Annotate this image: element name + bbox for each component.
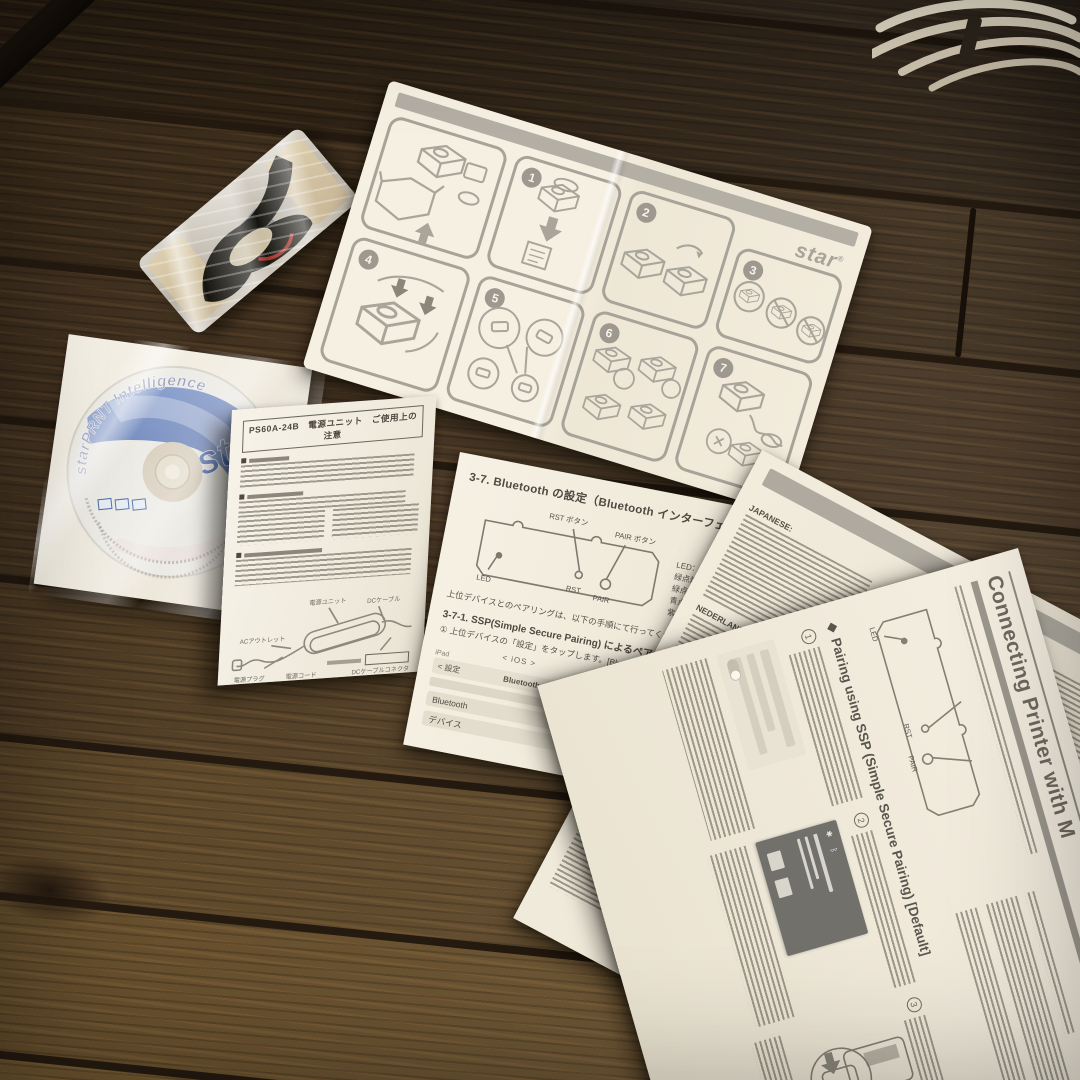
step2-art: [602, 191, 734, 327]
photo-scene: starPRNT Intelligence star star®: [0, 0, 1080, 1080]
label-pair: PAIR: [906, 754, 919, 773]
label-power-cord: 電源コード: [285, 671, 316, 681]
label-pair: PAIR: [592, 593, 611, 605]
power-adapter-diagram: 電源ユニット DCケーブル ACアウトレット 電源プラグ 電源コード DCケーブ…: [229, 577, 418, 686]
label-dc-cable: DCケーブル: [367, 595, 401, 605]
diamond-bullet: ◆: [824, 620, 842, 634]
bluetooth-icon: ᛒ: [829, 847, 839, 854]
ios-back-link: < 設定: [437, 660, 462, 675]
step-circle: 1: [800, 627, 819, 646]
label-rst-button: RST ボタン: [549, 511, 589, 527]
label-power-plug: 電源プラグ: [234, 674, 265, 684]
label-ac-outlet: ACアウトレット: [240, 635, 286, 646]
panel-unbox: [358, 114, 510, 261]
ios-devices-label: デバイス: [427, 713, 462, 731]
pairing-step-col: 2 ✱ ᛒ: [698, 811, 915, 1030]
label-led: LED: [867, 626, 880, 643]
unbox-art: [362, 118, 507, 258]
footer-text-bar: [327, 658, 361, 664]
label-rst: RST: [565, 584, 582, 596]
label-led: LED: [476, 573, 493, 585]
leaflet-title: PS60A-24B 電源ユニット ご使用上の注意: [242, 405, 424, 453]
text-lines: [237, 510, 325, 546]
white-cable: [872, 0, 1080, 114]
step3-prohibition-art: [716, 249, 841, 362]
pairing-step-col: 1: [646, 627, 863, 846]
ios-bluetooth-label: Bluetooth: [431, 694, 468, 711]
mock-bar: [813, 834, 833, 893]
settings-icon: ✱: [824, 829, 834, 838]
panel-step-3: 3: [713, 245, 845, 366]
section-bullet: [239, 494, 244, 499]
ios-title: Bluetooth: [503, 674, 541, 690]
section-bullet: [241, 458, 246, 463]
section-bullet: [236, 553, 241, 558]
label-rst: RST: [901, 723, 914, 740]
step-circle: 2: [852, 811, 871, 830]
label-pair-button: PAIR ボタン: [614, 530, 657, 547]
mock-button: [774, 878, 792, 899]
step-circle: 3: [905, 995, 924, 1014]
step6-art: [562, 311, 698, 461]
step4-art: [321, 238, 470, 391]
panel-step-2: 2: [599, 188, 738, 332]
text-lines: [331, 503, 419, 539]
panel-step-4: 4: [317, 234, 473, 395]
label-dc-connector: DCケーブルコネクタ: [351, 664, 409, 676]
mock-button: [767, 851, 785, 872]
power-unit-leaflet: PS60A-24B 電源ユニット ご使用上の注意 電源ユニット DCケーブル A…: [218, 396, 437, 686]
label-power-unit: 電源ユニット: [309, 596, 347, 607]
section-title-bar: [249, 456, 289, 463]
